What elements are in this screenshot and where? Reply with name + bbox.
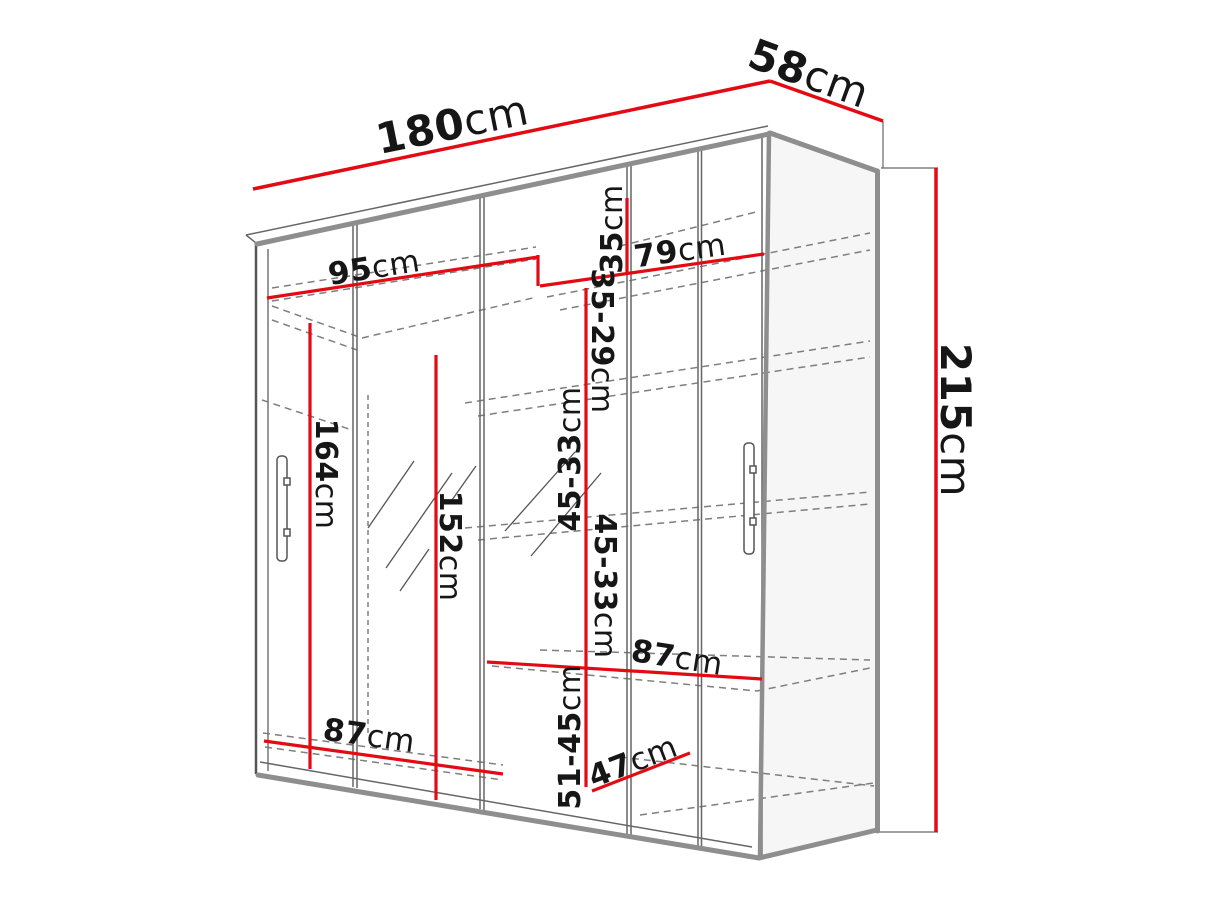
right-door-handle: [744, 443, 754, 554]
gap-2-label: 35-29cm: [585, 268, 620, 413]
shelf-width-mid-label: 87cm: [629, 633, 726, 683]
left-bottom-width-label: 87cm: [321, 712, 418, 761]
width-label: 180cm: [372, 85, 533, 164]
gap-5-label: 51-45cm: [553, 664, 588, 809]
depth-label: 58cm: [742, 29, 876, 118]
door-handles: [277, 443, 756, 561]
top-gap-label: 35cm: [595, 184, 630, 273]
gap-4-label: 45-33cm: [588, 513, 623, 658]
bottom-depth-label: 47cm: [583, 729, 682, 796]
diagram-canvas: 180cm 58cm 215cm 95cm 79cm 87cm 87cm 47c…: [0, 0, 1224, 918]
left-inner-width-label: 95cm: [326, 243, 423, 293]
mirror-height-label: 152cm: [433, 491, 468, 602]
gap-3-label: 45-33cm: [553, 386, 588, 531]
shelf-width-top-label: 79cm: [632, 227, 729, 276]
left-door-handle: [277, 456, 287, 561]
height-label: 215cm: [932, 343, 981, 497]
left-height-label: 164cm: [309, 419, 344, 530]
wardrobe-dimension-diagram: 180cm 58cm 215cm 95cm 79cm 87cm 87cm 47c…: [0, 0, 1224, 918]
side-panel-face: [760, 133, 877, 858]
